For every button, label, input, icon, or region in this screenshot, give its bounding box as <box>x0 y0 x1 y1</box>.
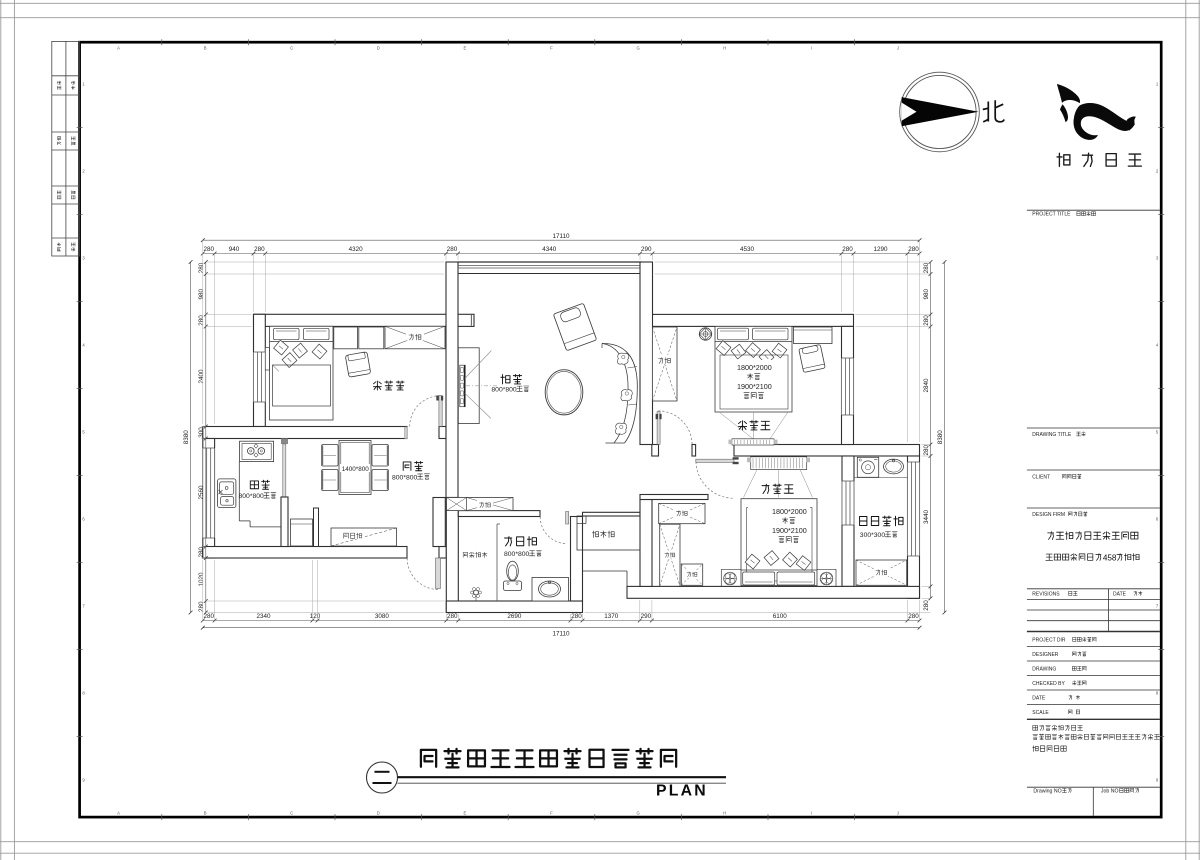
svg-text:980: 980 <box>923 288 930 299</box>
svg-text:280: 280 <box>908 246 919 253</box>
svg-text:I: I <box>811 811 812 816</box>
svg-text:D: D <box>377 46 380 51</box>
svg-text:3440: 3440 <box>923 510 930 525</box>
svg-text:6100: 6100 <box>773 613 788 620</box>
svg-text:4340: 4340 <box>542 246 557 253</box>
svg-text:800*800: 800*800 <box>491 387 517 394</box>
svg-text:B: B <box>204 811 207 816</box>
svg-text:4530: 4530 <box>740 246 755 253</box>
svg-text:280: 280 <box>842 246 853 253</box>
svg-text:SCALE: SCALE <box>1032 710 1049 716</box>
svg-text:CHECKED BY: CHECKED BY <box>1032 681 1065 687</box>
svg-text:2400: 2400 <box>198 369 205 384</box>
svg-text:H: H <box>723 811 726 816</box>
svg-text:J: J <box>897 46 899 51</box>
svg-text:280: 280 <box>198 546 205 557</box>
svg-text:DRAWING: DRAWING <box>1032 667 1056 673</box>
svg-text:280: 280 <box>198 315 205 326</box>
svg-text:Drawing NO: Drawing NO <box>1033 789 1061 795</box>
svg-text:2340: 2340 <box>256 613 271 620</box>
svg-text:1800*2000: 1800*2000 <box>737 363 772 372</box>
svg-text:H: H <box>723 46 726 51</box>
svg-text:280: 280 <box>447 613 458 620</box>
svg-text:J: J <box>897 811 899 816</box>
svg-text:280: 280 <box>571 613 582 620</box>
svg-text:800*800: 800*800 <box>392 474 418 481</box>
svg-text:PROJECT TITLE: PROJECT TITLE <box>1032 212 1071 218</box>
svg-text:CLIENT: CLIENT <box>1032 475 1050 481</box>
svg-text:300: 300 <box>198 427 205 438</box>
svg-text:E: E <box>464 46 467 51</box>
svg-text:Job NO: Job NO <box>1101 789 1119 795</box>
svg-text:1020: 1020 <box>198 572 205 587</box>
svg-text:2840: 2840 <box>923 378 930 393</box>
svg-text:280: 280 <box>198 262 205 273</box>
svg-text:290: 290 <box>641 246 652 253</box>
svg-text:940: 940 <box>229 246 240 253</box>
svg-text:800*800: 800*800 <box>239 493 265 500</box>
svg-text:1370: 1370 <box>604 613 619 620</box>
svg-text:2690: 2690 <box>507 613 522 620</box>
svg-text:1400*800: 1400*800 <box>342 466 369 473</box>
svg-text:280: 280 <box>447 246 458 253</box>
svg-text:G: G <box>636 811 639 816</box>
svg-text:300*300: 300*300 <box>860 532 886 539</box>
svg-text:120: 120 <box>310 613 321 620</box>
svg-text:280: 280 <box>254 246 265 253</box>
svg-text:REVISIONS: REVISIONS <box>1032 592 1060 598</box>
svg-text:280: 280 <box>908 613 919 620</box>
svg-text:A: A <box>117 46 120 51</box>
svg-text:3080: 3080 <box>375 613 390 620</box>
svg-text:800*800: 800*800 <box>504 551 530 558</box>
svg-text:C: C <box>290 46 293 51</box>
svg-text:1290: 1290 <box>873 246 888 253</box>
svg-text:1800*2000: 1800*2000 <box>772 507 807 516</box>
svg-text:DATE: DATE <box>1113 592 1127 598</box>
svg-text:DRAWING TITLE: DRAWING TITLE <box>1032 432 1072 438</box>
svg-text:2560: 2560 <box>198 485 205 500</box>
svg-text:8380: 8380 <box>937 430 944 445</box>
svg-text:290: 290 <box>641 613 652 620</box>
svg-text:DESIGNER: DESIGNER <box>1032 652 1059 658</box>
svg-text:1900*2100: 1900*2100 <box>737 382 772 391</box>
svg-text:PLAN: PLAN <box>656 783 708 800</box>
svg-text:I: I <box>811 46 812 51</box>
svg-text:17110: 17110 <box>552 233 570 240</box>
svg-text:G: G <box>636 46 639 51</box>
svg-text:8380: 8380 <box>183 430 190 445</box>
svg-text:980: 980 <box>198 288 205 299</box>
svg-text:E: E <box>464 811 467 816</box>
svg-text:1900*2100: 1900*2100 <box>772 526 807 535</box>
svg-text:280: 280 <box>198 601 205 612</box>
svg-text:17110: 17110 <box>552 631 570 638</box>
svg-text:458: 458 <box>1103 554 1117 563</box>
svg-text:A: A <box>117 811 120 816</box>
svg-text:B: B <box>204 46 207 51</box>
svg-text:280: 280 <box>923 600 930 611</box>
svg-text:280: 280 <box>923 315 930 326</box>
svg-text:D: D <box>377 811 380 816</box>
svg-text:F: F <box>550 46 553 51</box>
svg-text:280: 280 <box>203 613 214 620</box>
svg-text:280: 280 <box>923 262 930 273</box>
svg-text:PROJECT DIR: PROJECT DIR <box>1032 638 1066 644</box>
svg-text:DESIGN FIRM: DESIGN FIRM <box>1032 512 1065 518</box>
svg-text:F: F <box>550 811 553 816</box>
svg-text:280: 280 <box>923 444 930 455</box>
svg-text:DATE: DATE <box>1032 696 1046 702</box>
svg-text:4320: 4320 <box>349 246 364 253</box>
svg-text:C: C <box>290 811 293 816</box>
svg-text:280: 280 <box>203 246 214 253</box>
